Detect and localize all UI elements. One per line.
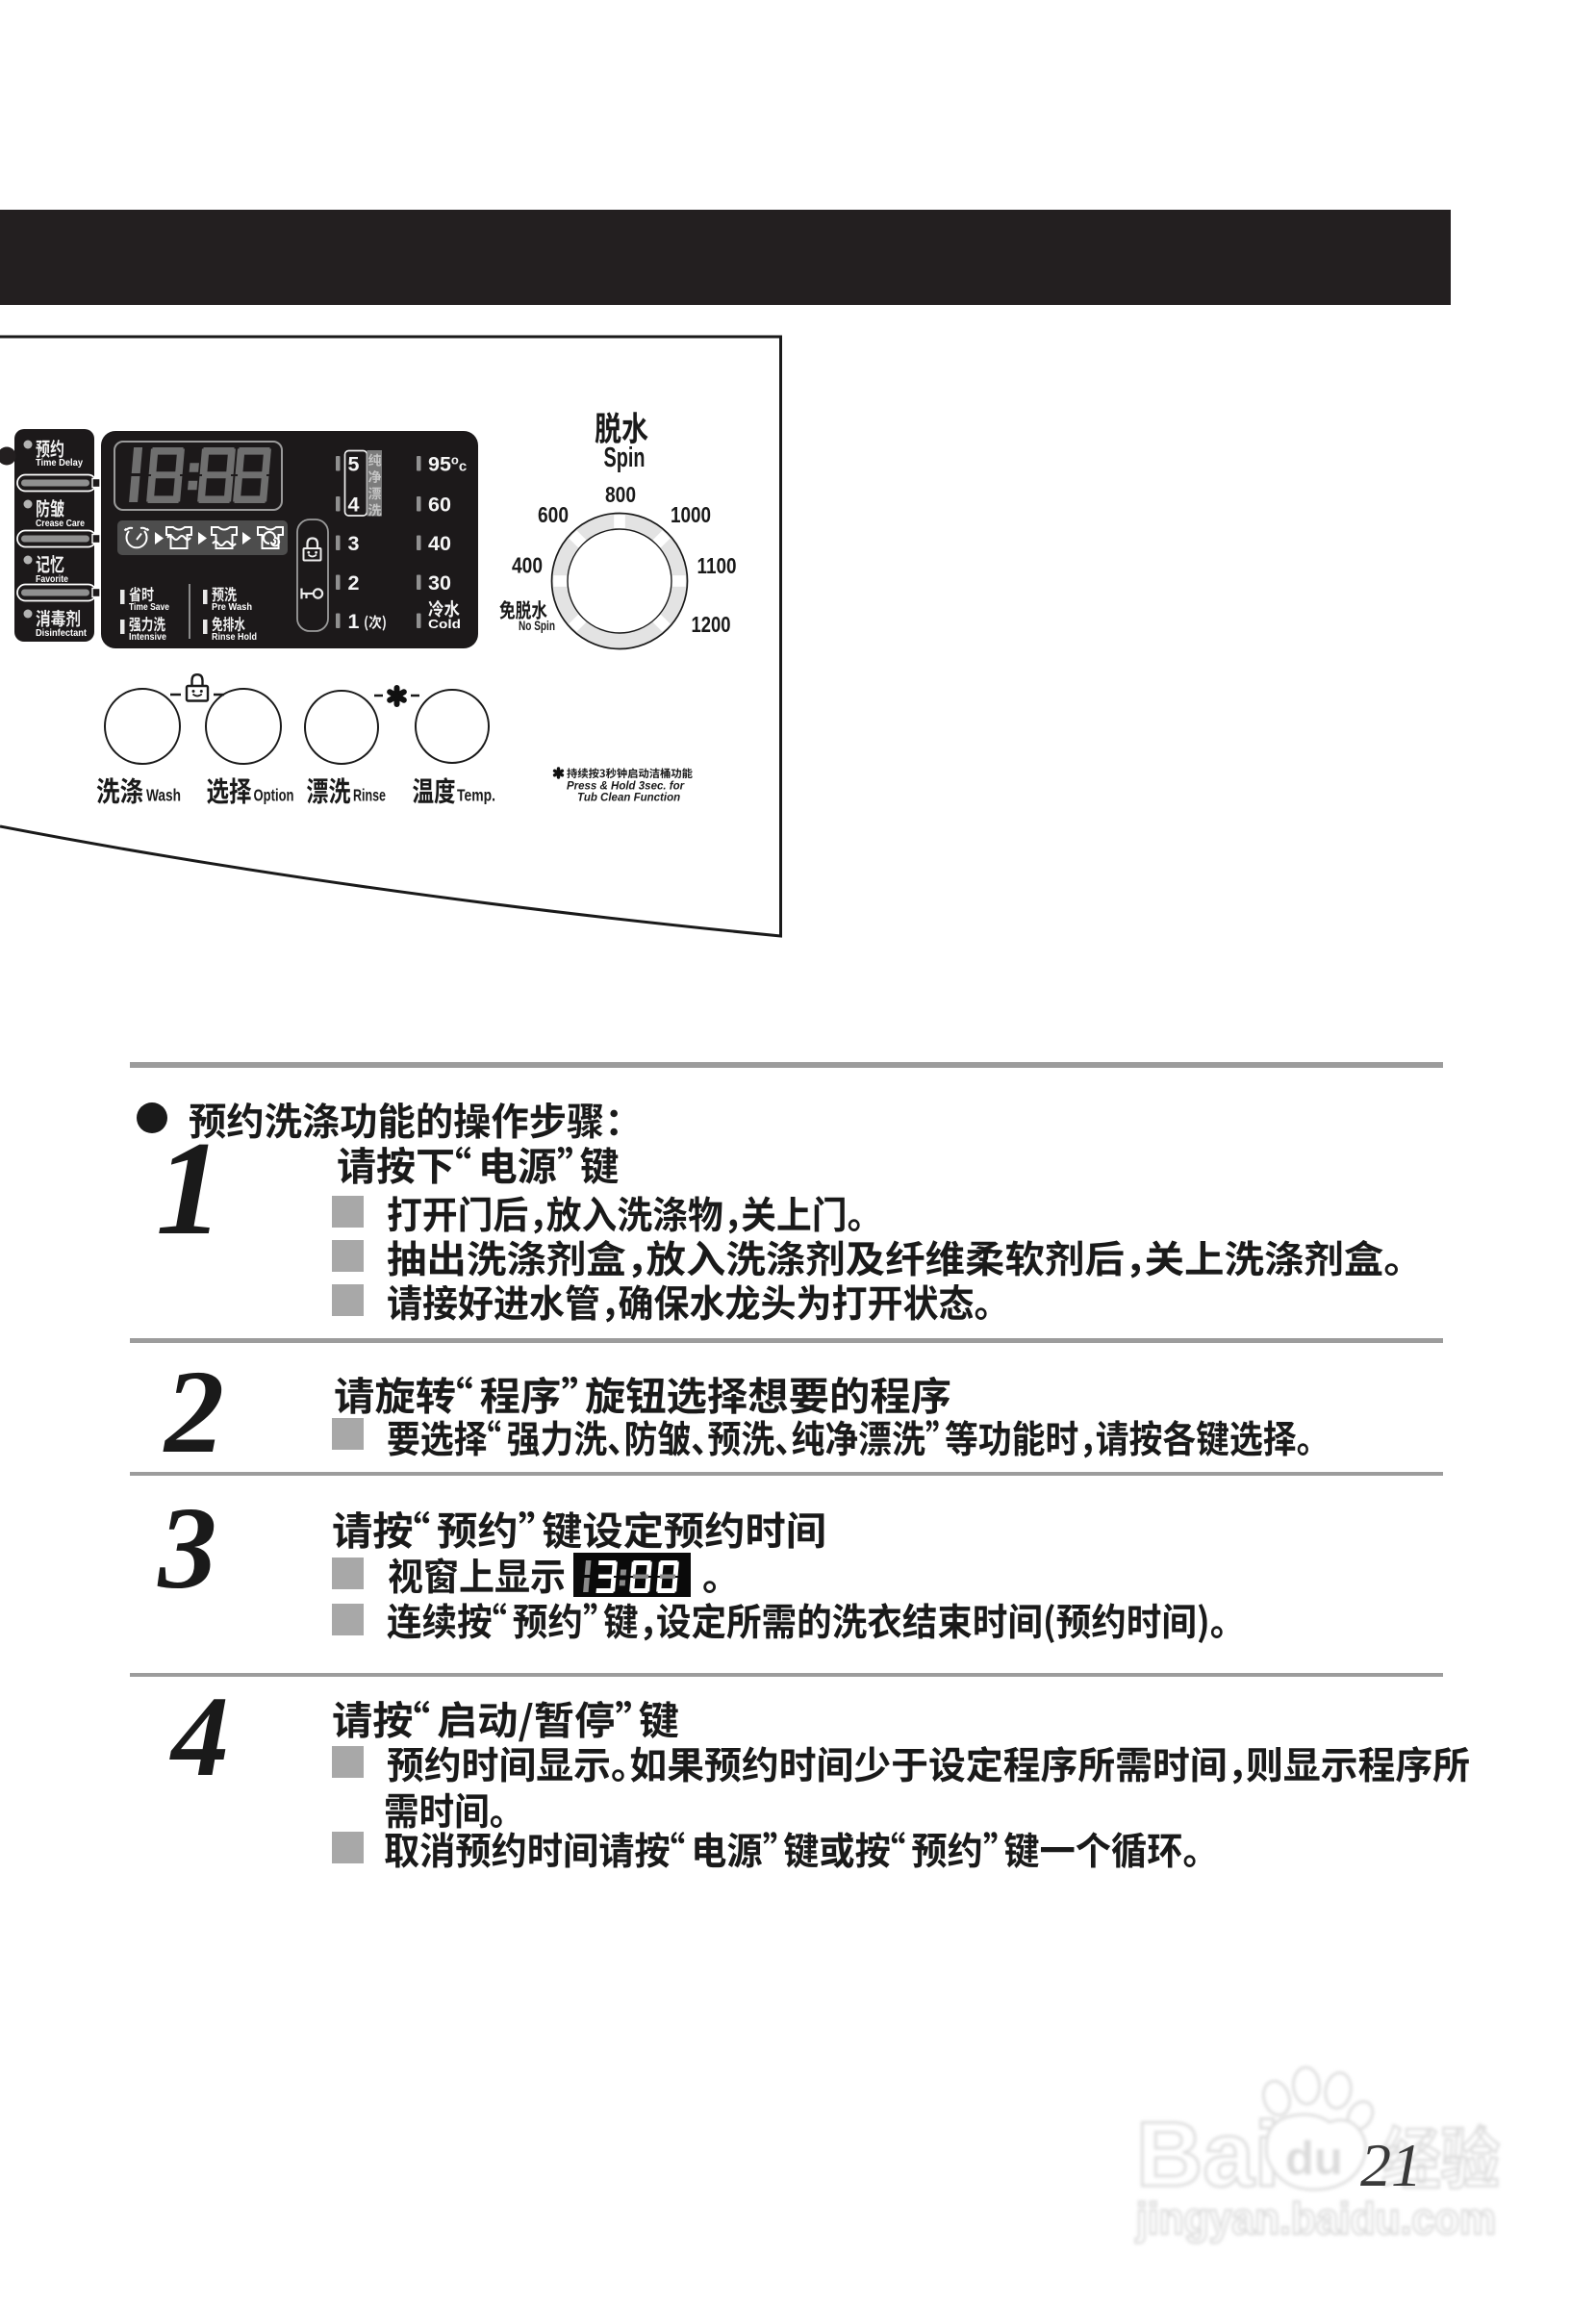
svg-text:5: 5 (348, 453, 360, 476)
svg-text:Wash: Wash (146, 786, 181, 805)
svg-text:1100: 1100 (697, 553, 737, 578)
svg-text:2: 2 (163, 1346, 224, 1478)
svg-text:4: 4 (348, 494, 360, 517)
svg-text:1: 1 (348, 610, 360, 633)
svg-text:jingyan.baidu.com: jingyan.baidu.com (1135, 2193, 1496, 2243)
svg-text:30: 30 (428, 571, 451, 595)
svg-text:Press & Hold 3sec. for: Press & Hold 3sec. for (567, 781, 685, 793)
svg-text:Time Delay: Time Delay (36, 458, 83, 469)
svg-text:Disinfectant: Disinfectant (36, 628, 88, 639)
svg-text:3: 3 (348, 532, 360, 555)
svg-text:1: 1 (156, 1114, 223, 1263)
svg-text:2: 2 (348, 571, 360, 595)
svg-text:Favorite: Favorite (36, 574, 68, 585)
svg-text:Cold: Cold (428, 618, 461, 631)
svg-text:Pre Wash: Pre Wash (212, 601, 252, 613)
svg-text:4: 4 (169, 1672, 229, 1800)
svg-text:Crease Care: Crease Care (36, 519, 85, 529)
svg-text:400: 400 (512, 553, 543, 578)
svg-text:Bai: Bai (1136, 2103, 1279, 2206)
svg-text:3: 3 (158, 1483, 217, 1613)
svg-text:Rinse: Rinse (353, 786, 386, 805)
svg-text:40: 40 (428, 532, 451, 555)
svg-text:21: 21 (1360, 2131, 1422, 2199)
svg-text:Temp.: Temp. (457, 786, 495, 805)
svg-text:60: 60 (428, 494, 451, 517)
svg-text:800: 800 (605, 482, 636, 507)
svg-text:Option: Option (254, 786, 294, 805)
svg-text:Time Save: Time Save (129, 601, 169, 613)
svg-text:Spin: Spin (604, 443, 646, 473)
svg-text:No Spin: No Spin (519, 618, 555, 633)
svg-text:Rinse Hold: Rinse Hold (212, 631, 257, 643)
svg-text:1000: 1000 (671, 502, 711, 527)
svg-text:Intensive: Intensive (129, 631, 166, 643)
svg-text:du: du (1285, 2133, 1343, 2185)
svg-text:Tub Clean Function: Tub Clean Function (577, 793, 680, 804)
svg-text:600: 600 (538, 502, 569, 527)
svg-text:1200: 1200 (692, 612, 731, 637)
